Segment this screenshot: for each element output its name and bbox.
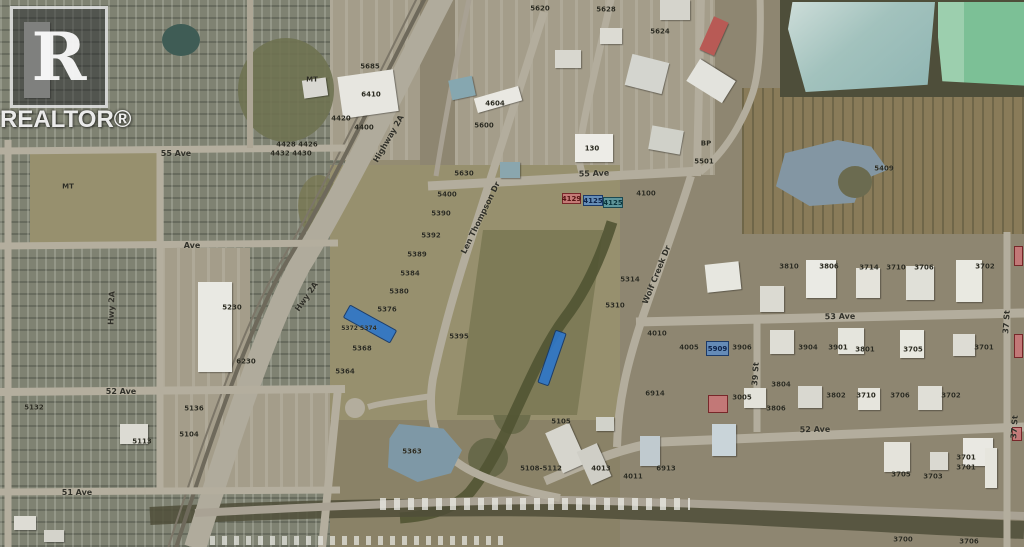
lot-label: 5384 [400,271,419,278]
lot-label: 5685 [360,64,379,71]
lot-label: 3700 [893,537,912,544]
lot-label: 3806 [766,406,785,413]
lot-label: 3904 [798,345,817,352]
lot-label: 3710 [886,265,905,272]
lot-label: 4010 [647,331,666,338]
realtor-logo-letter: R [32,24,87,90]
lot-label: 3701 [956,455,975,462]
lot-label: 5620 [530,6,549,13]
street-label: Highway 2A [372,114,406,164]
street-label: 39 St [751,362,761,386]
lot-label: 4013 [591,466,610,473]
lot-label: 5395 [449,334,468,341]
lot-label: 5108-5112 [520,466,562,473]
realtor-wordmark: REALTOR® [0,106,140,134]
lot-label: 5136 [184,406,203,413]
street-label: 52 Ave [106,388,136,396]
lot-label: 5390 [431,211,450,218]
lot-label: 4011 [623,474,642,481]
street-label: Hwy 2A [294,281,320,313]
lot-label: 5105 [551,419,570,426]
lot-label: 5409 [874,166,893,173]
street-label: Len Thompson Dr [460,181,502,256]
lot-label: 5501 [694,159,713,166]
lot-label: 5624 [650,29,669,36]
lot-label: 5230 [222,305,241,312]
street-label: Ave [184,242,201,250]
map-labels-layer: 55 Ave55 Ave53 Ave52 Ave52 Ave51 AveAve3… [0,0,1024,547]
lot-label: 4100 [636,191,655,198]
street-label: 37 St [1002,310,1012,334]
lot-label: 4432 4430 [270,151,311,158]
street-label: 51 Ave [62,489,92,497]
lot-label: 3801 [855,347,874,354]
lot-label: 3702 [941,393,960,400]
lot-label: 3806 [819,264,838,271]
lot-label: 4428 4426 [276,142,317,149]
lot-label: 4604 [485,101,504,108]
lot-label: 3702 [975,264,994,271]
lot-label: MT [62,184,74,191]
lot-label: 5314 [620,277,639,284]
lot-label: 4400 [354,125,373,132]
lot-label: 5310 [605,303,624,310]
lot-label: 3714 [859,265,878,272]
lot-label: BP [701,141,711,148]
lot-label: 3705 [891,472,910,479]
lot-label: 6410 [361,92,380,99]
lot-label: 3710 [856,393,875,400]
lot-label: 5376 [377,307,396,314]
satellite-map[interactable]: 4129412541255909 55 Ave55 Ave53 Ave52 Av… [0,0,1024,547]
lot-label: 3701 [974,345,993,352]
lot-label: 3706 [890,393,909,400]
lot-label: 5628 [596,7,615,14]
street-label: 53 Ave [825,313,856,322]
street-label: 37 St [1010,415,1020,439]
lot-label: 6914 [645,391,664,398]
lot-label: 5113 [132,439,151,446]
lot-label: 3901 [828,345,847,352]
lot-label: 5630 [454,171,473,178]
lot-label: 5132 [24,405,43,412]
lot-label: MT [306,77,318,84]
lot-label: 4420 [331,116,350,123]
street-label: 55 Ave [161,150,191,158]
lot-label: 5600 [474,123,493,130]
lot-label: 5363 [402,449,421,456]
lot-label: 5380 [389,289,408,296]
lot-label: 4005 [679,345,698,352]
lot-label: 3005 [732,395,751,402]
lot-label: 3906 [732,345,751,352]
lot-label: 3802 [826,393,845,400]
lot-label: 6913 [656,466,675,473]
street-label: Wolf Creek Dr [642,245,673,306]
lot-label: 3810 [779,264,798,271]
lot-label: 3706 [959,539,978,546]
lot-label: 3701 [956,465,975,472]
lot-label: 5368 [352,346,371,353]
lot-label: 3705 [903,347,922,354]
lot-label: 3706 [914,265,933,272]
lot-label: 5104 [179,432,198,439]
lot-label: 5400 [437,192,456,199]
lot-label: 5392 [421,233,440,240]
lot-label: 5372 5374 [341,326,377,332]
lot-label: 5389 [407,252,426,259]
realtor-logo: R [10,6,108,108]
lot-label: 3703 [923,474,942,481]
lot-label: 3804 [771,382,790,389]
street-label: 55 Ave [579,169,610,178]
street-label: Hwy 2A [107,291,116,325]
street-label: 52 Ave [800,426,831,435]
lot-label: 6230 [236,359,255,366]
lot-label: 130 [585,146,600,153]
lot-label: 5364 [335,369,354,376]
